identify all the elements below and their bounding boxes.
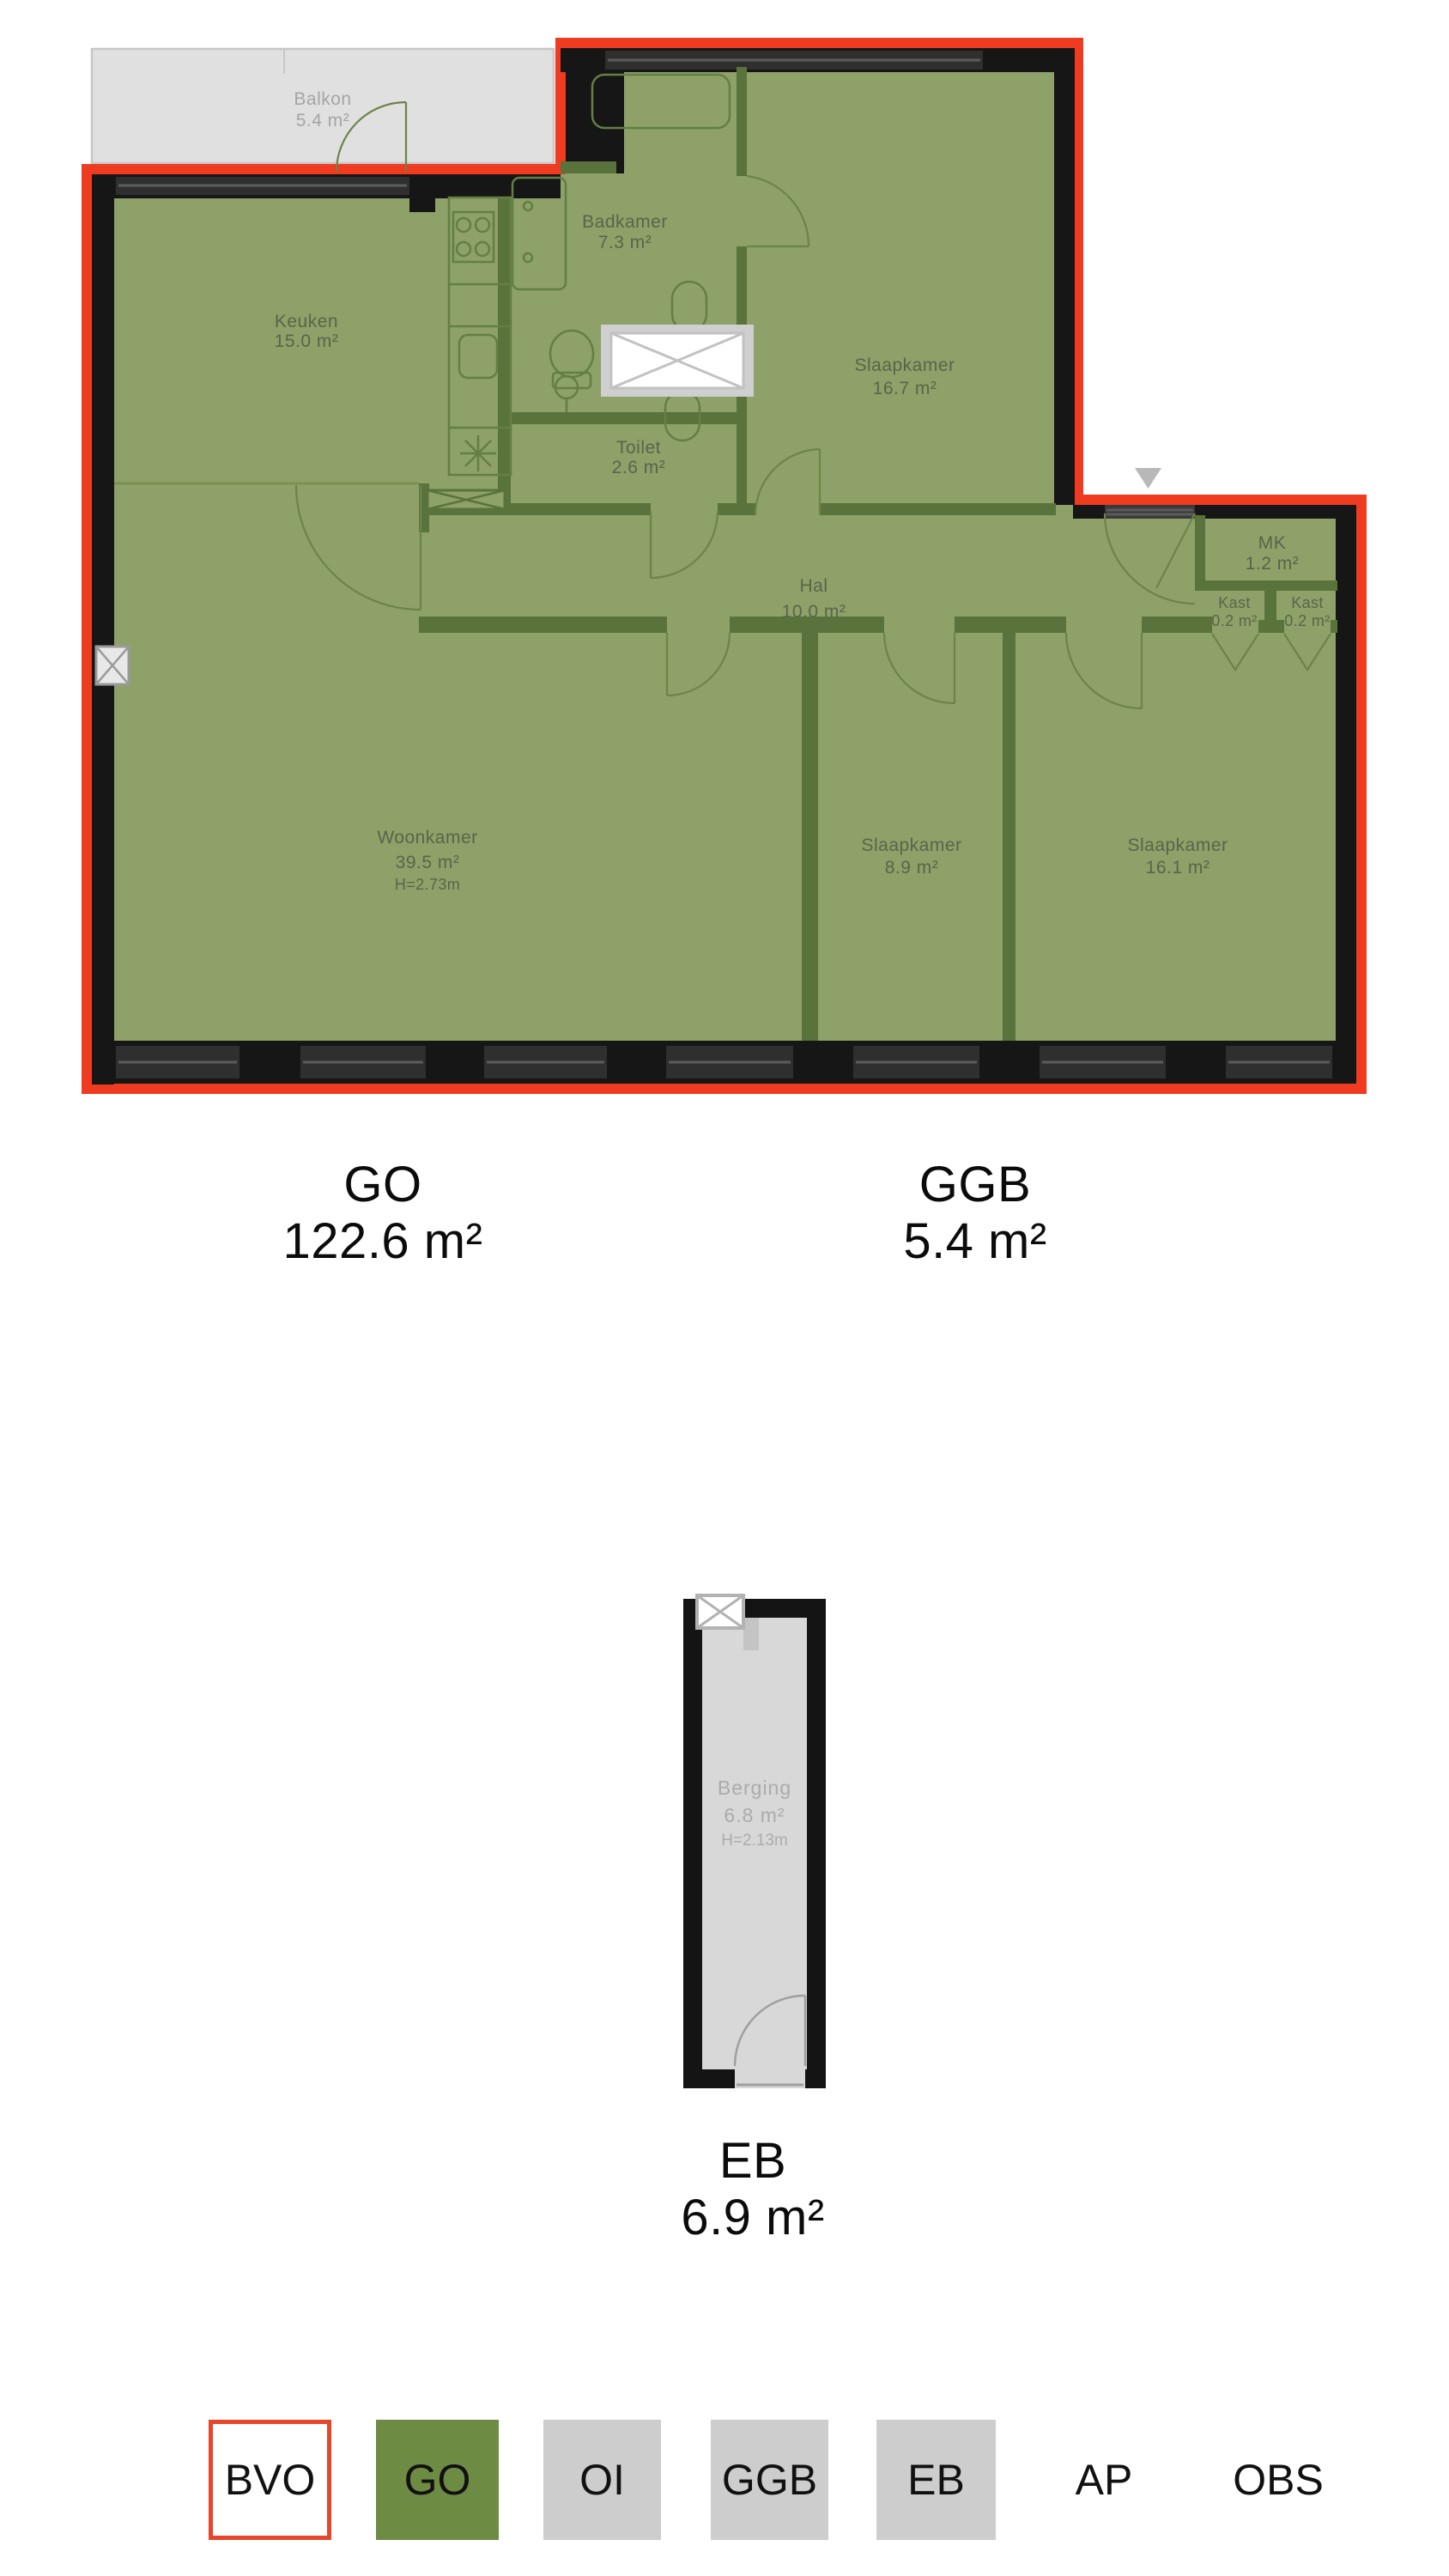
- legend-label-obs: OBS: [1233, 2455, 1324, 2505]
- legend-label-go: GO: [404, 2455, 471, 2505]
- legend-item-ap[interactable]: AP: [1044, 2420, 1164, 2540]
- area-value-go: 122.6 m²: [168, 1213, 597, 1270]
- room-label-mk: MK: [1258, 533, 1287, 553]
- apartment-outline: [87, 43, 1361, 1089]
- room-label-slaapkamer-3: Slaapkamer: [1127, 835, 1228, 855]
- room-area-woonkamer: 39.5 m²: [396, 853, 460, 872]
- legend-item-obs[interactable]: OBS: [1218, 2420, 1338, 2540]
- room-label-woonkamer: Woonkamer: [377, 828, 477, 848]
- area-code-eb: EB: [538, 2133, 967, 2190]
- legend-item-ggb[interactable]: GGB: [711, 2420, 828, 2540]
- room-label-kast-1: Kast: [1218, 594, 1251, 611]
- room-label-balkon: Balkon: [294, 89, 351, 109]
- legend-label-eb: EB: [907, 2455, 965, 2505]
- legend-item-bvo[interactable]: BVO: [209, 2420, 331, 2540]
- floorplan-viewer: Balkon 5.4 m² Keuken 15.0 m² Badkamer 7.…: [0, 0, 1449, 2576]
- room-height-woonkamer: H=2.73m: [395, 876, 460, 893]
- room-label-keuken: Keuken: [275, 312, 338, 331]
- area-value-ggb: 5.4 m²: [761, 1213, 1190, 1270]
- room-label-hal: Hal: [799, 576, 828, 596]
- area-value-eb: 6.9 m²: [538, 2190, 967, 2246]
- room-label-slaapkamer-1: Slaapkamer: [854, 355, 955, 375]
- area-code-ggb: GGB: [761, 1157, 1190, 1213]
- room-label-toilet: Toilet: [616, 438, 661, 458]
- area-label-eb: EB 6.9 m²: [538, 2133, 967, 2246]
- room-area-toilet: 2.6 m²: [612, 458, 666, 477]
- room-area-slaapkamer-1: 16.7 m²: [873, 379, 937, 398]
- legend-label-oi: OI: [579, 2455, 625, 2505]
- room-area-kast-2: 0.2 m²: [1284, 612, 1330, 629]
- room-label-slaapkamer-2: Slaapkamer: [861, 835, 961, 855]
- legend-item-go[interactable]: GO: [376, 2420, 499, 2540]
- legend-label-ap: AP: [1076, 2455, 1133, 2505]
- room-area-badkamer: 7.3 m²: [598, 233, 652, 252]
- legend-item-eb[interactable]: EB: [876, 2420, 996, 2540]
- room-label-badkamer: Badkamer: [582, 212, 668, 232]
- room-area-slaapkamer-3: 16.1 m²: [1146, 858, 1210, 878]
- legend-label-bvo: BVO: [225, 2455, 316, 2505]
- room-height-berging: H=2.13m: [721, 1832, 788, 1850]
- room-area-balkon: 5.4 m²: [296, 111, 350, 131]
- room-area-mk: 1.2 m²: [1246, 554, 1300, 574]
- room-area-kast-1: 0.2 m²: [1211, 612, 1257, 629]
- storage-floorplan[interactable]: Berging 6.8 m² H=2.13m: [683, 1595, 826, 2088]
- area-label-go: GO 122.6 m²: [168, 1157, 597, 1270]
- room-label-kast-2: Kast: [1291, 594, 1324, 611]
- area-label-ggb: GGB 5.4 m²: [761, 1157, 1190, 1270]
- room-area-berging: 6.8 m²: [724, 1804, 785, 1826]
- room-area-keuken: 15.0 m²: [275, 331, 339, 351]
- area-code-go: GO: [168, 1157, 597, 1213]
- room-label-berging: Berging: [718, 1777, 791, 1799]
- room-area-slaapkamer-2: 8.9 m²: [885, 858, 939, 878]
- entrance-marker-icon: [1135, 468, 1161, 489]
- legend-label-ggb: GGB: [722, 2455, 817, 2505]
- legend: BVO GO OI GGB EB AP OBS: [0, 2420, 1449, 2540]
- room-area-hal: 10.0 m²: [782, 602, 846, 622]
- legend-item-oi[interactable]: OI: [543, 2420, 661, 2540]
